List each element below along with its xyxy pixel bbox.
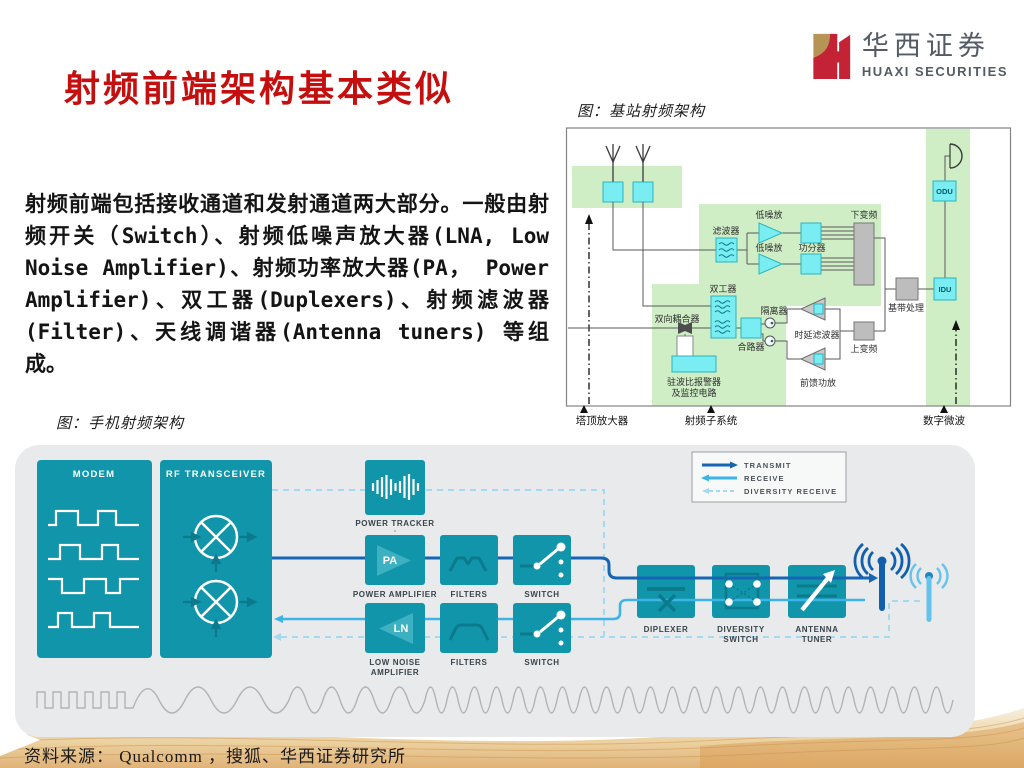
- diplexer-box: [637, 565, 695, 618]
- delay-filter-label: 时延滤波器: [794, 329, 839, 340]
- huaxi-logo-icon: [806, 30, 852, 82]
- duplexer-label: 双工器: [709, 284, 736, 294]
- splitter-box-1: [801, 223, 821, 243]
- diplexer-label: DIPLEXER: [644, 625, 689, 634]
- switch-rx-label: SWITCH: [524, 658, 559, 667]
- power-tracker-label: POWER TRACKER: [355, 519, 434, 528]
- antenna-tuner-label-2: TUNER: [802, 635, 833, 644]
- downconverter-label: 下变频: [850, 209, 877, 220]
- diversity-switch-label-1: DIVERSITY: [717, 625, 765, 634]
- legend-diversity-label: DIVERSITY RECEIVE: [744, 487, 837, 496]
- splitter-box-2: [801, 254, 821, 274]
- isolator-label: 隔离器: [760, 305, 787, 316]
- ln-label: LN: [394, 623, 409, 635]
- huaxi-logo: 华西证券 HUAXI SECURITIES: [806, 30, 1008, 82]
- pa-label: PA: [383, 555, 398, 567]
- lna-top-label: 低噪放: [755, 209, 782, 220]
- logo-cn: 华西证券: [862, 33, 1008, 60]
- body-paragraph: 射频前端包括接收通道和发射通道两大部分。一般由射频开关（Switch）、射频低噪…: [25, 189, 549, 380]
- left-up-arrow: [585, 214, 593, 224]
- low-noise-label-1: LOW NOISE: [369, 658, 420, 667]
- baseband-label: 基带处理: [888, 302, 924, 313]
- base-station-figure: 滤波器 低噪放 低噪放 功分器 下变频 基带处理 ODU IDU: [565, 126, 1012, 428]
- combiner-label: 合路器: [737, 341, 764, 352]
- vswr-box: [672, 356, 716, 372]
- filters-tx-label: FILTERS: [451, 590, 488, 599]
- page-title: 射频前端架构基本类似: [64, 60, 454, 112]
- power-amplifier-label: POWER AMPLIFIER: [353, 590, 437, 599]
- phone-figure: DIPLEXER DIVERSITY SWITCH ANTENNA TUNER: [15, 445, 975, 737]
- switch-tx-label: SWITCH: [524, 590, 559, 599]
- transceiver-label: RF TRANSCEIVER: [166, 469, 266, 480]
- filters-rx-box: [440, 603, 498, 653]
- slide: 射频前端架构基本类似 华西证券 HUAXI SECURITIES 射频前端包括接…: [0, 0, 1024, 768]
- green-zone-odu-idu: [926, 129, 970, 406]
- axis-rf-label: 射频子系统: [685, 414, 738, 427]
- source-note: 资料来源： Qualcomm ，搜狐、华西证券研究所: [24, 742, 406, 767]
- axis-tower-label: 塔顶放大器: [576, 414, 629, 427]
- base-station-caption: 图：基站射频架构: [577, 100, 705, 121]
- odu-label: ODU: [936, 187, 953, 196]
- filter-label: 滤波器: [712, 225, 739, 236]
- lna-bottom-label: 低噪放: [755, 242, 782, 253]
- modem-label: MODEM: [73, 469, 115, 480]
- combiner-box: [741, 318, 761, 338]
- splitter-label: 功分器: [798, 243, 825, 253]
- antenna-switch-box-2: [633, 182, 653, 202]
- axis-microwave-label: 数字微波: [923, 414, 965, 427]
- filters-rx-label: FILTERS: [451, 658, 488, 667]
- downconverter-box: [854, 223, 874, 285]
- legend-transmit-label: TRANSMIT: [744, 461, 792, 470]
- vswr-label-2: 及监控电路: [671, 387, 716, 398]
- feedforward-amp-label: 前馈功放: [800, 377, 836, 388]
- antenna-switch-box-1: [603, 182, 623, 202]
- coupler-stem-box: [677, 336, 693, 356]
- antenna-tuner-label-1: ANTENNA: [795, 625, 838, 634]
- logo-en: HUAXI SECURITIES: [862, 64, 1008, 79]
- logo-text: 华西证券 HUAXI SECURITIES: [862, 33, 1008, 79]
- coupler-label: 双向耦合器: [654, 313, 699, 324]
- phone-caption: 图：手机射频架构: [56, 412, 184, 433]
- baseband-box: [896, 278, 918, 300]
- idu-label: IDU: [939, 285, 952, 294]
- upconverter-box: [854, 322, 874, 340]
- vswr-label-1: 驻波比报警器: [667, 376, 721, 387]
- green-zone-antenna: [572, 166, 682, 208]
- upconverter-label: 上变频: [850, 343, 877, 354]
- legend-receive-label: RECEIVE: [744, 474, 785, 483]
- legend: TRANSMIT RECEIVE DIVERSITY RECEIVE: [692, 452, 846, 502]
- diversity-switch-label-2: SWITCH: [723, 635, 758, 644]
- low-noise-label-2: AMPLIFIER: [371, 668, 420, 677]
